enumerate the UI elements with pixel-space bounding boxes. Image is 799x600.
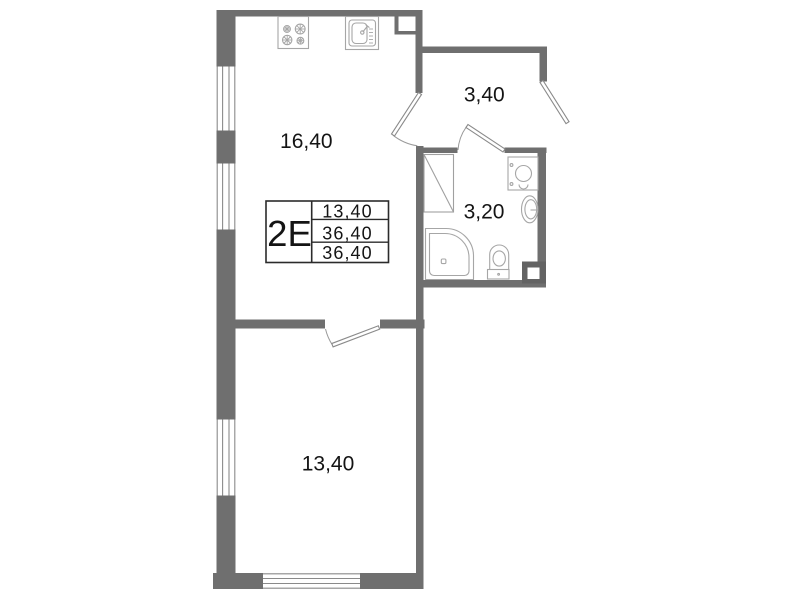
svg-text:3,40: 3,40: [464, 83, 505, 106]
svg-text:13,40: 13,40: [302, 452, 355, 475]
svg-text:13,40: 13,40: [322, 201, 373, 221]
svg-text:36,40: 36,40: [322, 223, 373, 243]
svg-text:36,40: 36,40: [322, 243, 373, 263]
svg-text:2Е: 2Е: [267, 213, 312, 254]
svg-text:16,40: 16,40: [280, 130, 333, 153]
svg-text:3,20: 3,20: [464, 200, 505, 223]
